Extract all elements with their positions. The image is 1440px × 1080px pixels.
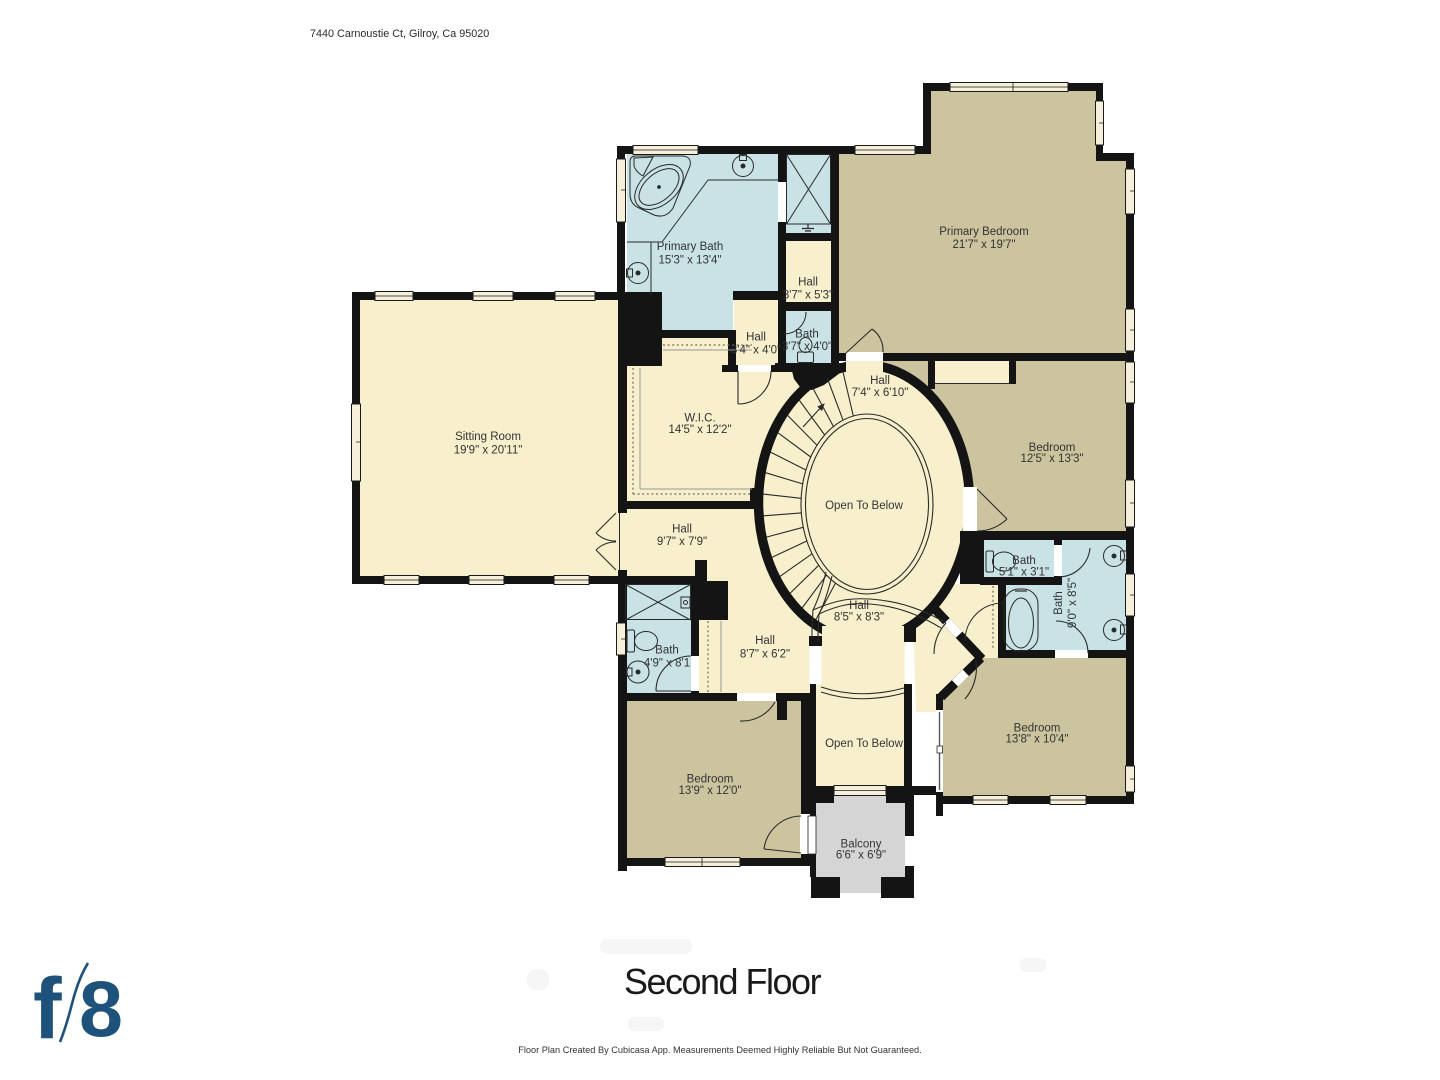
svg-text:12'5" x 13'3": 12'5" x 13'3" xyxy=(1020,453,1083,465)
svg-text:21'7" x 19'7": 21'7" x 19'7" xyxy=(952,239,1015,251)
svg-text:Open To Below: Open To Below xyxy=(825,500,903,512)
svg-text:8'7" x 6'2": 8'7" x 6'2" xyxy=(740,649,790,661)
svg-text:Hall: Hall xyxy=(849,600,869,612)
svg-text:Hall: Hall xyxy=(672,524,692,536)
svg-text:14'5" x 12'2": 14'5" x 12'2" xyxy=(668,424,731,436)
svg-text:8'5" x 8'3": 8'5" x 8'3" xyxy=(834,612,884,624)
svg-text:7'4" x 6'10": 7'4" x 6'10" xyxy=(852,387,909,399)
svg-text:4'9" x 8'1: 4'9" x 8'1 xyxy=(644,658,690,670)
svg-text:8: 8 xyxy=(79,964,123,1053)
svg-text:Second Floor: Second Floor xyxy=(624,961,822,1002)
svg-text:15'3" x 13'4": 15'3" x 13'4" xyxy=(658,255,721,267)
svg-text:Bedroom: Bedroom xyxy=(687,774,734,786)
svg-text:13'8" x 10'4": 13'8" x 10'4" xyxy=(1005,734,1068,746)
svg-text:3'7" x 4'0": 3'7" x 4'0" xyxy=(782,341,832,353)
svg-text:9'7" x 7'9": 9'7" x 7'9" xyxy=(657,536,707,548)
svg-text:Bath: Bath xyxy=(655,645,679,657)
svg-text:5'1" x 3'1": 5'1" x 3'1" xyxy=(999,567,1049,579)
svg-text:Bath: Bath xyxy=(1012,555,1036,567)
svg-text:Open To Below: Open To Below xyxy=(825,738,903,750)
svg-text:Hall: Hall xyxy=(870,375,890,387)
svg-text:Bath: Bath xyxy=(795,329,819,341)
svg-text:Primary Bedroom: Primary Bedroom xyxy=(939,226,1028,238)
svg-text:Hall: Hall xyxy=(798,277,818,289)
svg-text:Sitting Room: Sitting Room xyxy=(455,431,521,443)
svg-text:3'7" x 5'3": 3'7" x 5'3" xyxy=(783,290,833,302)
svg-text:6'6" x 6'9": 6'6" x 6'9" xyxy=(836,850,886,862)
svg-text:19'9" x 20'11": 19'9" x 20'11" xyxy=(454,445,523,457)
svg-text:W.I.C.: W.I.C. xyxy=(684,413,715,425)
svg-text:Bath: Bath xyxy=(1053,591,1065,615)
svg-text:7440 Carnoustie Ct, Gilroy, Ca: 7440 Carnoustie Ct, Gilroy, Ca 95020 xyxy=(310,28,489,40)
svg-text:Primary Bath: Primary Bath xyxy=(657,241,723,253)
svg-text:Hall: Hall xyxy=(755,635,775,647)
svg-text:9'0" x 8'5": 9'0" x 8'5" xyxy=(1067,578,1079,628)
svg-text:3'4" x 4'0": 3'4" x 4'0" xyxy=(731,345,781,357)
svg-text:13'9" x 12'0": 13'9" x 12'0" xyxy=(678,785,741,797)
svg-text:Hall: Hall xyxy=(746,332,766,344)
svg-text:Floor Plan Created By Cubicasa: Floor Plan Created By Cubicasa App. Meas… xyxy=(518,1045,921,1055)
svg-text:f: f xyxy=(33,961,62,1057)
